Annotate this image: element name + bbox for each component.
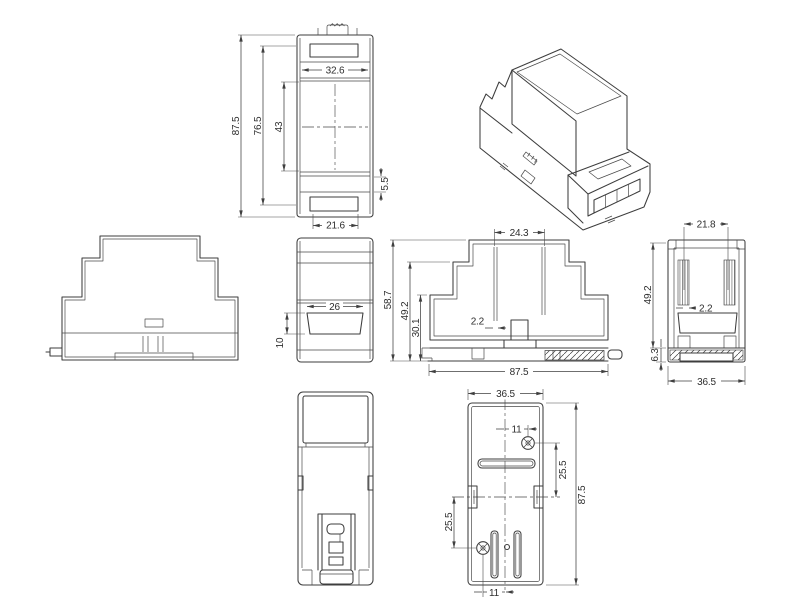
- dim-top-width-bottom: 21.6: [326, 221, 345, 232]
- front-section-view: 24.3 58.7 49.2 30.1 2.2 87.5: [383, 227, 622, 379]
- dim-bottom-screw-offset-top: 11: [512, 425, 523, 436]
- dim-top-step: 5.5: [380, 177, 391, 191]
- bottom-view: 36.5 11 25.5 87.5 25.5 11: [444, 388, 588, 600]
- isometric-view: [480, 49, 650, 230]
- dim-rsection-wall: 2.2: [699, 304, 713, 315]
- dim-bottom-screw-offset-bottom: 11: [489, 588, 500, 599]
- dim-bottom-screw-spacing-left: 25.5: [444, 512, 455, 531]
- side-view: 26 10: [275, 238, 373, 362]
- dim-top-height-window: 43: [274, 121, 285, 132]
- dim-side-opening-width: 26: [329, 302, 340, 313]
- dim-bottom-height-overall: 87.5: [577, 485, 588, 504]
- dim-rsection-width-overall: 36.5: [697, 377, 716, 388]
- dim-section-height-overall: 58.7: [383, 290, 394, 309]
- back-view: [298, 392, 373, 585]
- dim-side-opening-height: 10: [275, 337, 286, 348]
- dim-bottom-screw-spacing-right: 25.5: [558, 460, 569, 479]
- dim-top-height-inner: 76.5: [253, 116, 264, 135]
- dim-section-width-overall: 87.5: [510, 367, 529, 378]
- technical-drawing-page: 87.5 76.5 43 32.6 5.5 21.6: [0, 0, 800, 606]
- dim-rsection-width-top: 21.8: [697, 220, 716, 231]
- dim-bottom-width-overall: 36.5: [496, 389, 515, 400]
- dim-section-wall: 2.2: [471, 317, 485, 328]
- dim-section-pillar-spacing: 24.3: [510, 228, 529, 239]
- top-view: 87.5 76.5 43 32.6 5.5 21.6: [231, 24, 391, 232]
- drawing-canvas: 87.5 76.5 43 32.6 5.5 21.6: [0, 0, 800, 606]
- front-view: [46, 236, 238, 360]
- side-section-view: 21.8 49.2 2.2 6.3 36.5: [643, 219, 745, 389]
- dim-section-height-mid: 49.2: [400, 301, 411, 320]
- dim-top-width: 32.6: [326, 66, 345, 77]
- dim-rsection-height-mid: 49.2: [643, 285, 654, 304]
- dim-section-height-body: 30.1: [411, 318, 422, 337]
- dim-rsection-base-height: 6.3: [650, 348, 661, 362]
- dim-top-height-overall: 87.5: [231, 116, 242, 135]
